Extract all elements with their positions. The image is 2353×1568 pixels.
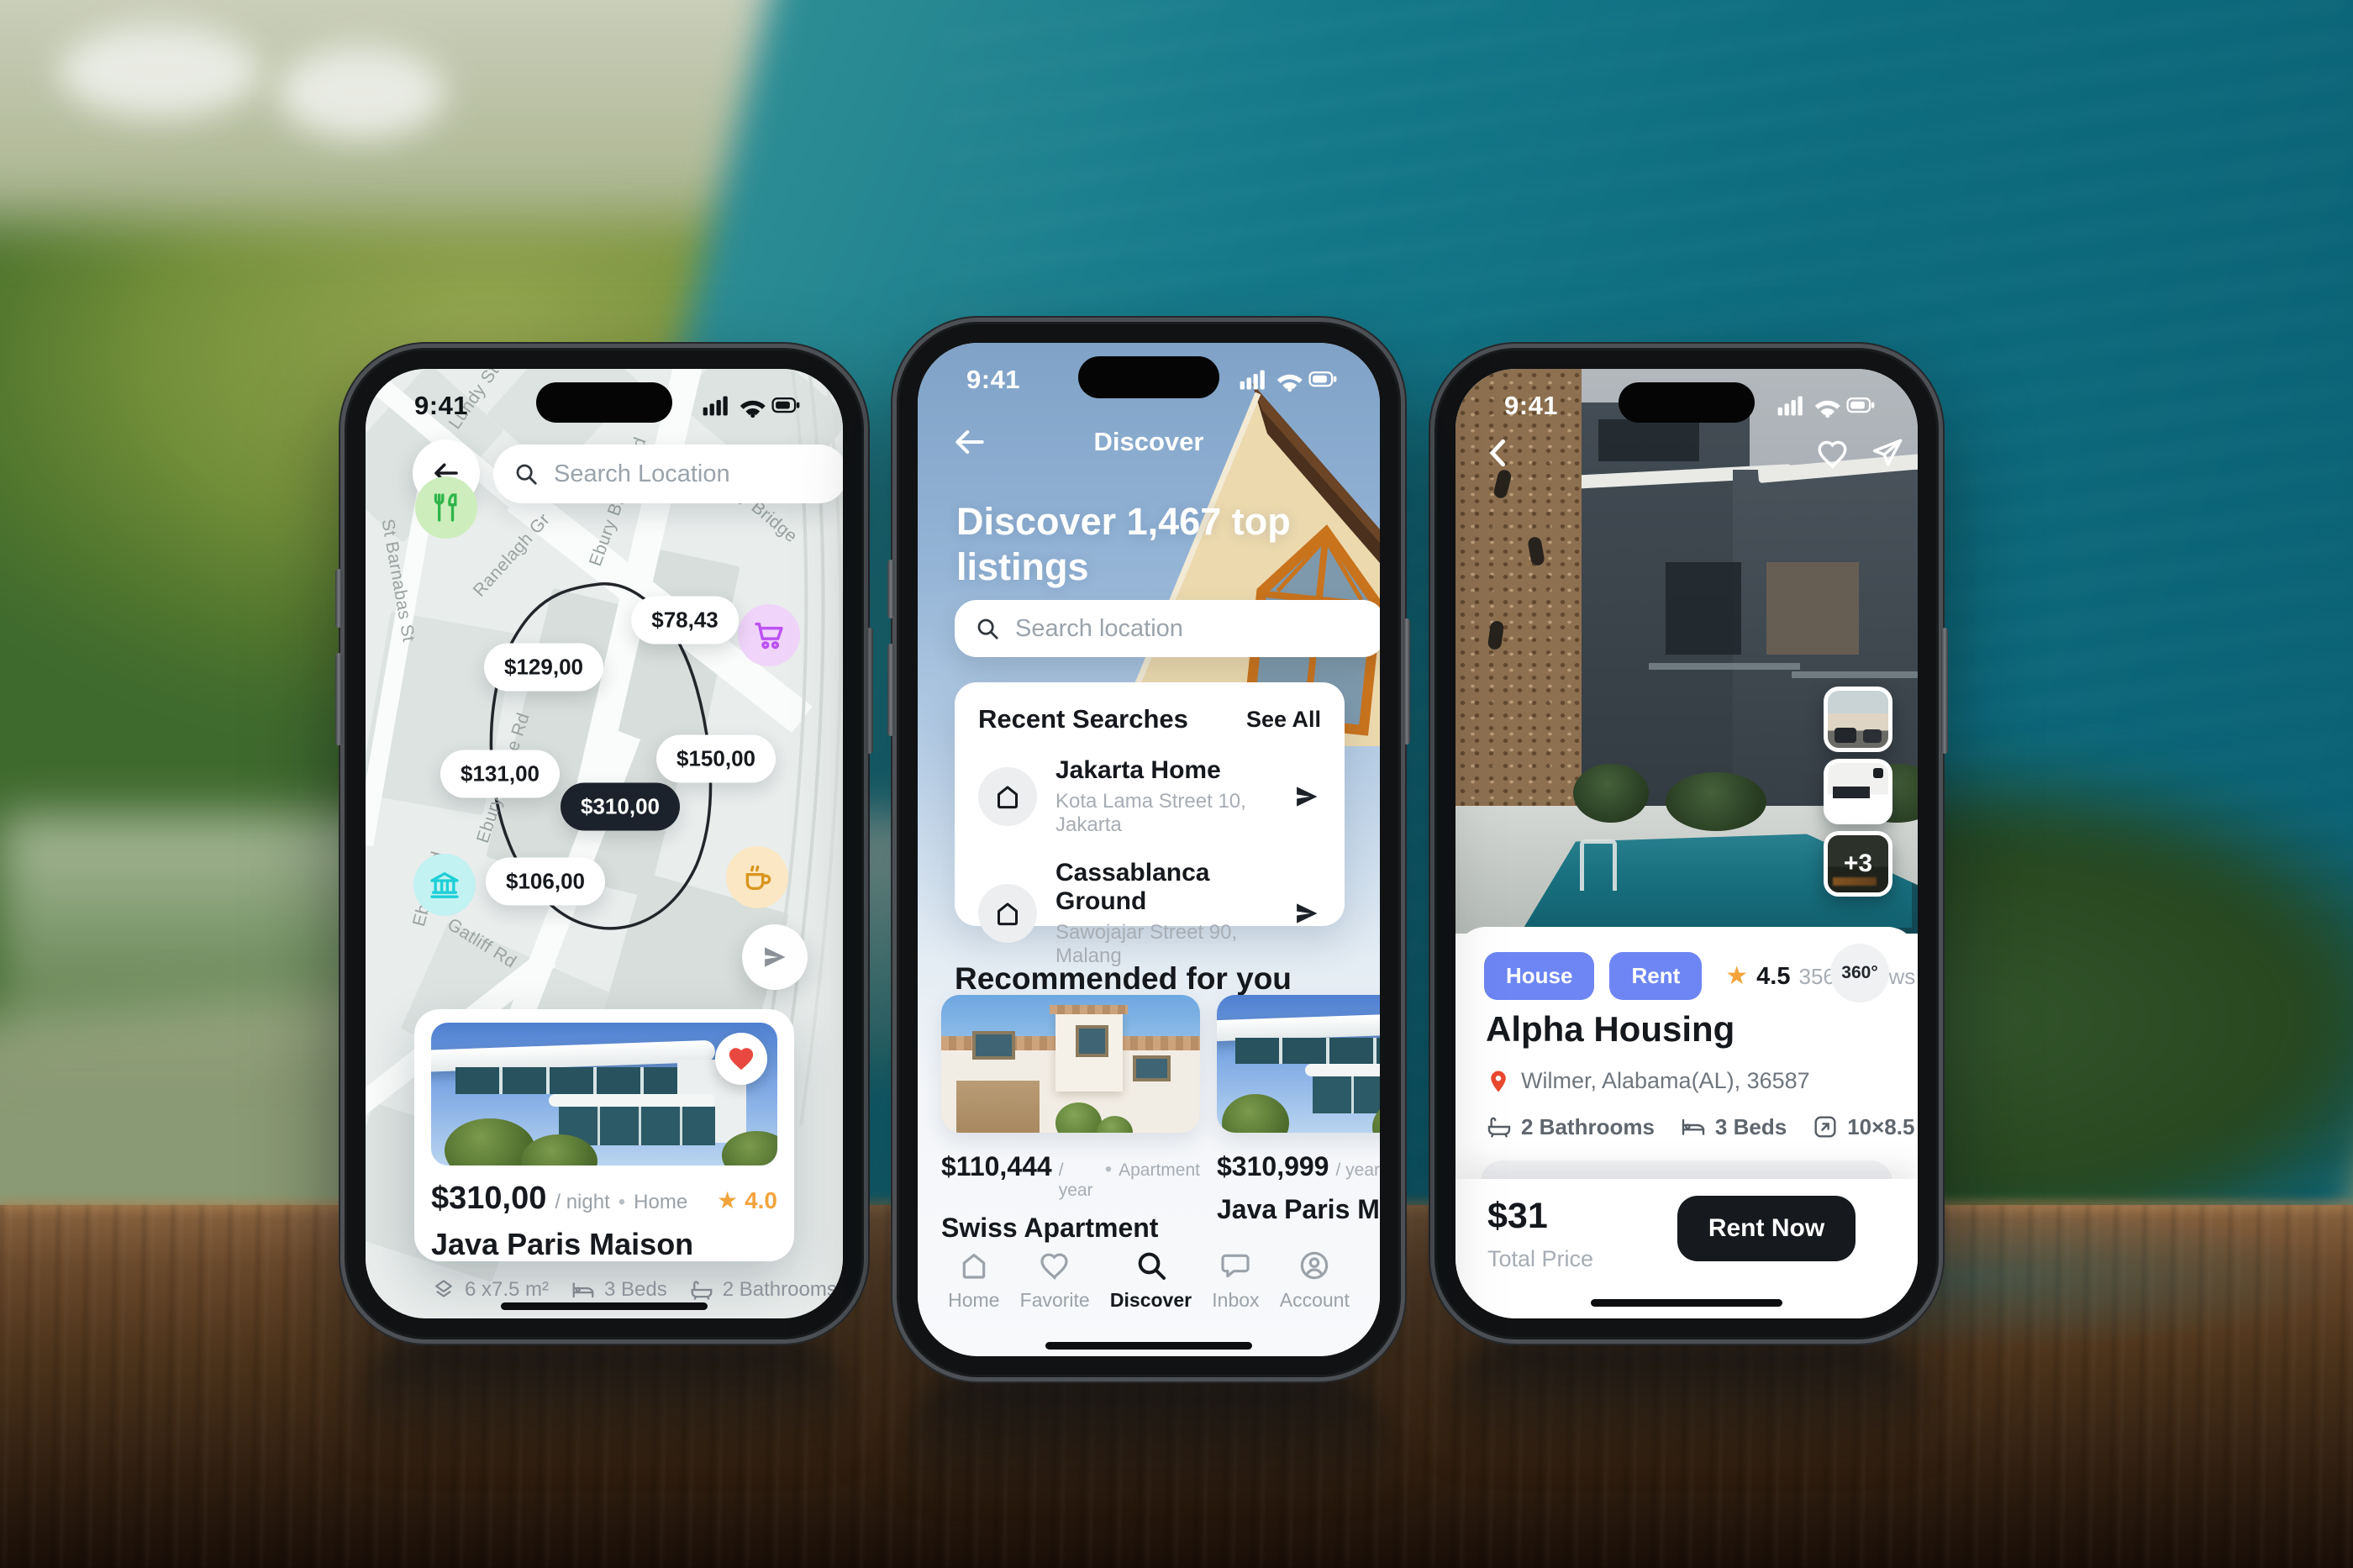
volume-button [887,560,894,618]
phone-reflection [353,1338,857,1497]
status-icons [700,393,803,418]
navigate-icon[interactable] [1292,782,1321,811]
listing-area: 6 x7.5 m² [465,1278,549,1302]
status-time: 9:41 [966,365,1020,395]
bed-icon [1680,1113,1707,1140]
search-icon [1134,1249,1168,1282]
property-title: Alpha Housing [1486,1009,1734,1050]
map-price-pin[interactable]: $78,43 [631,597,739,645]
separator-dot: • [1105,1158,1112,1181]
chat-icon [1219,1249,1252,1282]
card-title: Java Paris Maison [1217,1194,1380,1225]
bank-icon [428,868,461,902]
listing-beds: 3 Beds [604,1278,667,1302]
favorite-button[interactable] [715,1033,767,1085]
recommended-photo [941,995,1200,1133]
rating-value: 4.5 [1756,963,1790,991]
total-price: $31 [1487,1196,1548,1237]
view-360-button[interactable]: 360° [1830,944,1889,1002]
feature-baths: 2 Bathrooms [1521,1114,1655,1140]
card-title: Swiss Apartment [941,1213,1200,1244]
notch [1078,356,1219,398]
recent-item-title: Jakarta Home [1055,756,1274,785]
phone-reflection [1442,1338,1931,1497]
tag-rent[interactable]: Rent [1609,952,1702,1000]
recommended-card[interactable]: $110,444 / year • Apartment Swiss Apartm… [941,995,1200,1244]
tag-house[interactable]: House [1484,952,1594,1000]
feature-size: 10×8.5 m² [1847,1114,1918,1140]
tab-favorite[interactable]: Favorite [1020,1249,1090,1312]
cart-icon [752,618,786,652]
recent-searches-card: Recent Searches See All Jakarta Home Kot… [955,682,1345,926]
discover-screen: Discover Discover 1,467 top listings Rec… [918,343,1380,1356]
listing-rating: 4.0 [745,1187,777,1214]
bottom-tab-bar: Home Favorite Discover Inbox Account [918,1249,1380,1312]
notch [1619,382,1755,423]
bed-icon [571,1277,596,1302]
phone-detail: +3 House Rent ★ 4.5 356 reviews 360° Alp… [1437,350,1936,1337]
search-bar[interactable] [955,600,1380,657]
coffee-icon [740,860,774,894]
listing-photo [431,1023,777,1165]
back-arrow-icon[interactable] [951,424,988,460]
gallery-thumbnail[interactable] [1824,687,1892,752]
feature-beds: 3 Beds [1715,1114,1787,1140]
shopping-poi[interactable] [738,604,800,666]
home-indicator [1045,1342,1252,1350]
bathtub-icon [689,1277,714,1302]
star-icon: ★ [1725,961,1748,991]
backdrop-chair [59,25,261,118]
volume-button [887,644,894,736]
total-price-caption: Total Price [1487,1246,1593,1272]
tab-home[interactable]: Home [948,1249,999,1312]
navigate-icon[interactable] [1292,899,1321,928]
recommended-title: Recommended for you [955,961,1292,997]
power-button [1403,618,1410,745]
share-icon[interactable] [1869,436,1904,471]
home-icon [957,1249,991,1282]
location-pin-icon [1486,1069,1511,1094]
footer-bar: $31 Total Price Rent Now [1455,1179,1918,1318]
more-photos-overlay: +3 [1828,835,1888,892]
gallery-thumbnail[interactable] [1824,759,1892,824]
heart-icon [1038,1249,1071,1282]
card-price-unit: / year [1335,1160,1380,1181]
map-price-pin[interactable]: $106,00 [486,858,605,906]
listing-type: Home [634,1191,687,1214]
back-chevron-icon[interactable] [1481,434,1518,471]
mockup-scene: Lundy St Ranelagh Gr Ebury Bridge Rd Ebu… [0,0,2353,1568]
recent-searches-title: Recent Searches [978,704,1188,734]
phone-map: Lundy St Ranelagh Gr Ebury Bridge Rd Ebu… [347,350,861,1337]
recent-search-item[interactable]: Cassablanca Ground Sawojajar Street 90, … [978,859,1321,968]
restaurant-poi[interactable] [415,476,477,539]
listing-price: $310,00 [431,1181,546,1217]
status-icons [1775,393,1877,418]
badge-360-label: 360° [1841,963,1877,983]
backdrop-chair [277,46,445,139]
gallery-thumbnail-more[interactable]: +3 [1824,831,1892,897]
tab-label: Account [1280,1289,1350,1312]
volume-button [335,653,342,745]
home-indicator [501,1302,708,1310]
recent-item-title: Cassablanca Ground [1055,859,1274,916]
card-type: Apartment [1119,1160,1200,1181]
map-price-pin[interactable]: $131,00 [440,750,560,798]
tab-label: Favorite [1020,1289,1090,1312]
backdrop-patio [0,0,1671,219]
see-all-link[interactable]: See All [1246,707,1321,733]
status-time: 9:41 [1504,391,1558,421]
map-price-pin-selected[interactable]: $310,00 [561,783,680,831]
tab-account[interactable]: Account [1280,1249,1350,1312]
recommended-card[interactable]: $310,999 / year • Java Paris Maison [1217,995,1380,1225]
home-indicator [1591,1299,1782,1307]
map-price-pin[interactable]: $150,00 [656,735,776,783]
search-bar[interactable] [493,445,843,503]
rent-now-button[interactable]: Rent Now [1677,1196,1856,1261]
power-button [1941,628,1948,754]
separator-dot: • [619,1191,625,1214]
recommended-photo [1217,995,1380,1133]
area-icon [431,1277,456,1302]
listing-baths: 2 Bathrooms [723,1278,837,1302]
status-icons [1237,367,1340,392]
map-price-pin[interactable]: $129,00 [484,644,603,692]
property-location: Wilmer, Alabama(AL), 36587 [1521,1068,1810,1094]
tab-label: Home [948,1289,999,1312]
phone-discover: Discover Discover 1,467 top listings Rec… [899,324,1398,1375]
search-icon [513,461,539,487]
star-icon: ★ [717,1187,738,1214]
brick-wall [1455,369,1582,823]
navigation-arrow-icon [761,943,789,971]
power-button [866,628,873,754]
cafe-poi[interactable] [726,846,788,908]
status-time: 9:41 [414,391,468,421]
map-screen: Lundy St Ranelagh Gr Ebury Bridge Rd Ebu… [366,369,843,1318]
locate-me-button[interactable] [742,924,808,990]
nav-bar: Discover [918,427,1380,457]
tab-label: Inbox [1212,1289,1259,1312]
fork-knife-icon [429,491,463,524]
account-icon [1298,1249,1331,1282]
card-price: $310,999 [1217,1151,1329,1182]
dimensions-icon [1812,1113,1839,1140]
house-icon [978,884,1037,943]
notch [536,382,672,423]
discover-heading: Discover 1,467 top listings [956,499,1309,590]
bathtub-icon [1486,1113,1513,1140]
card-price: $110,444 [941,1151,1052,1182]
listing-card[interactable]: $310,00 / night • Home ★4.0 Java Paris M… [414,1009,794,1261]
volume-button [335,569,342,628]
house-icon [978,767,1037,826]
heart-icon [727,1044,755,1073]
search-icon [975,616,1000,641]
heart-outline-icon[interactable] [1815,436,1850,471]
tab-label: Discover [1110,1289,1192,1312]
detail-screen: +3 House Rent ★ 4.5 356 reviews 360° Alp… [1455,369,1918,1318]
recent-item-subtitle: Kota Lama Street 10, Jakarta [1055,790,1274,837]
search-input[interactable] [552,460,828,489]
search-input[interactable] [1013,614,1365,644]
tab-discover[interactable]: Discover [1110,1249,1192,1312]
bank-poi[interactable] [413,854,476,916]
listing-title: Java Paris Maison [431,1227,777,1262]
phone-reflection [903,1375,1394,1526]
listing-price-unit: / night [555,1191,609,1214]
tab-inbox[interactable]: Inbox [1212,1249,1259,1312]
recent-search-item[interactable]: Jakarta Home Kota Lama Street 10, Jakart… [978,756,1321,837]
card-price-unit: / year [1059,1160,1098,1201]
